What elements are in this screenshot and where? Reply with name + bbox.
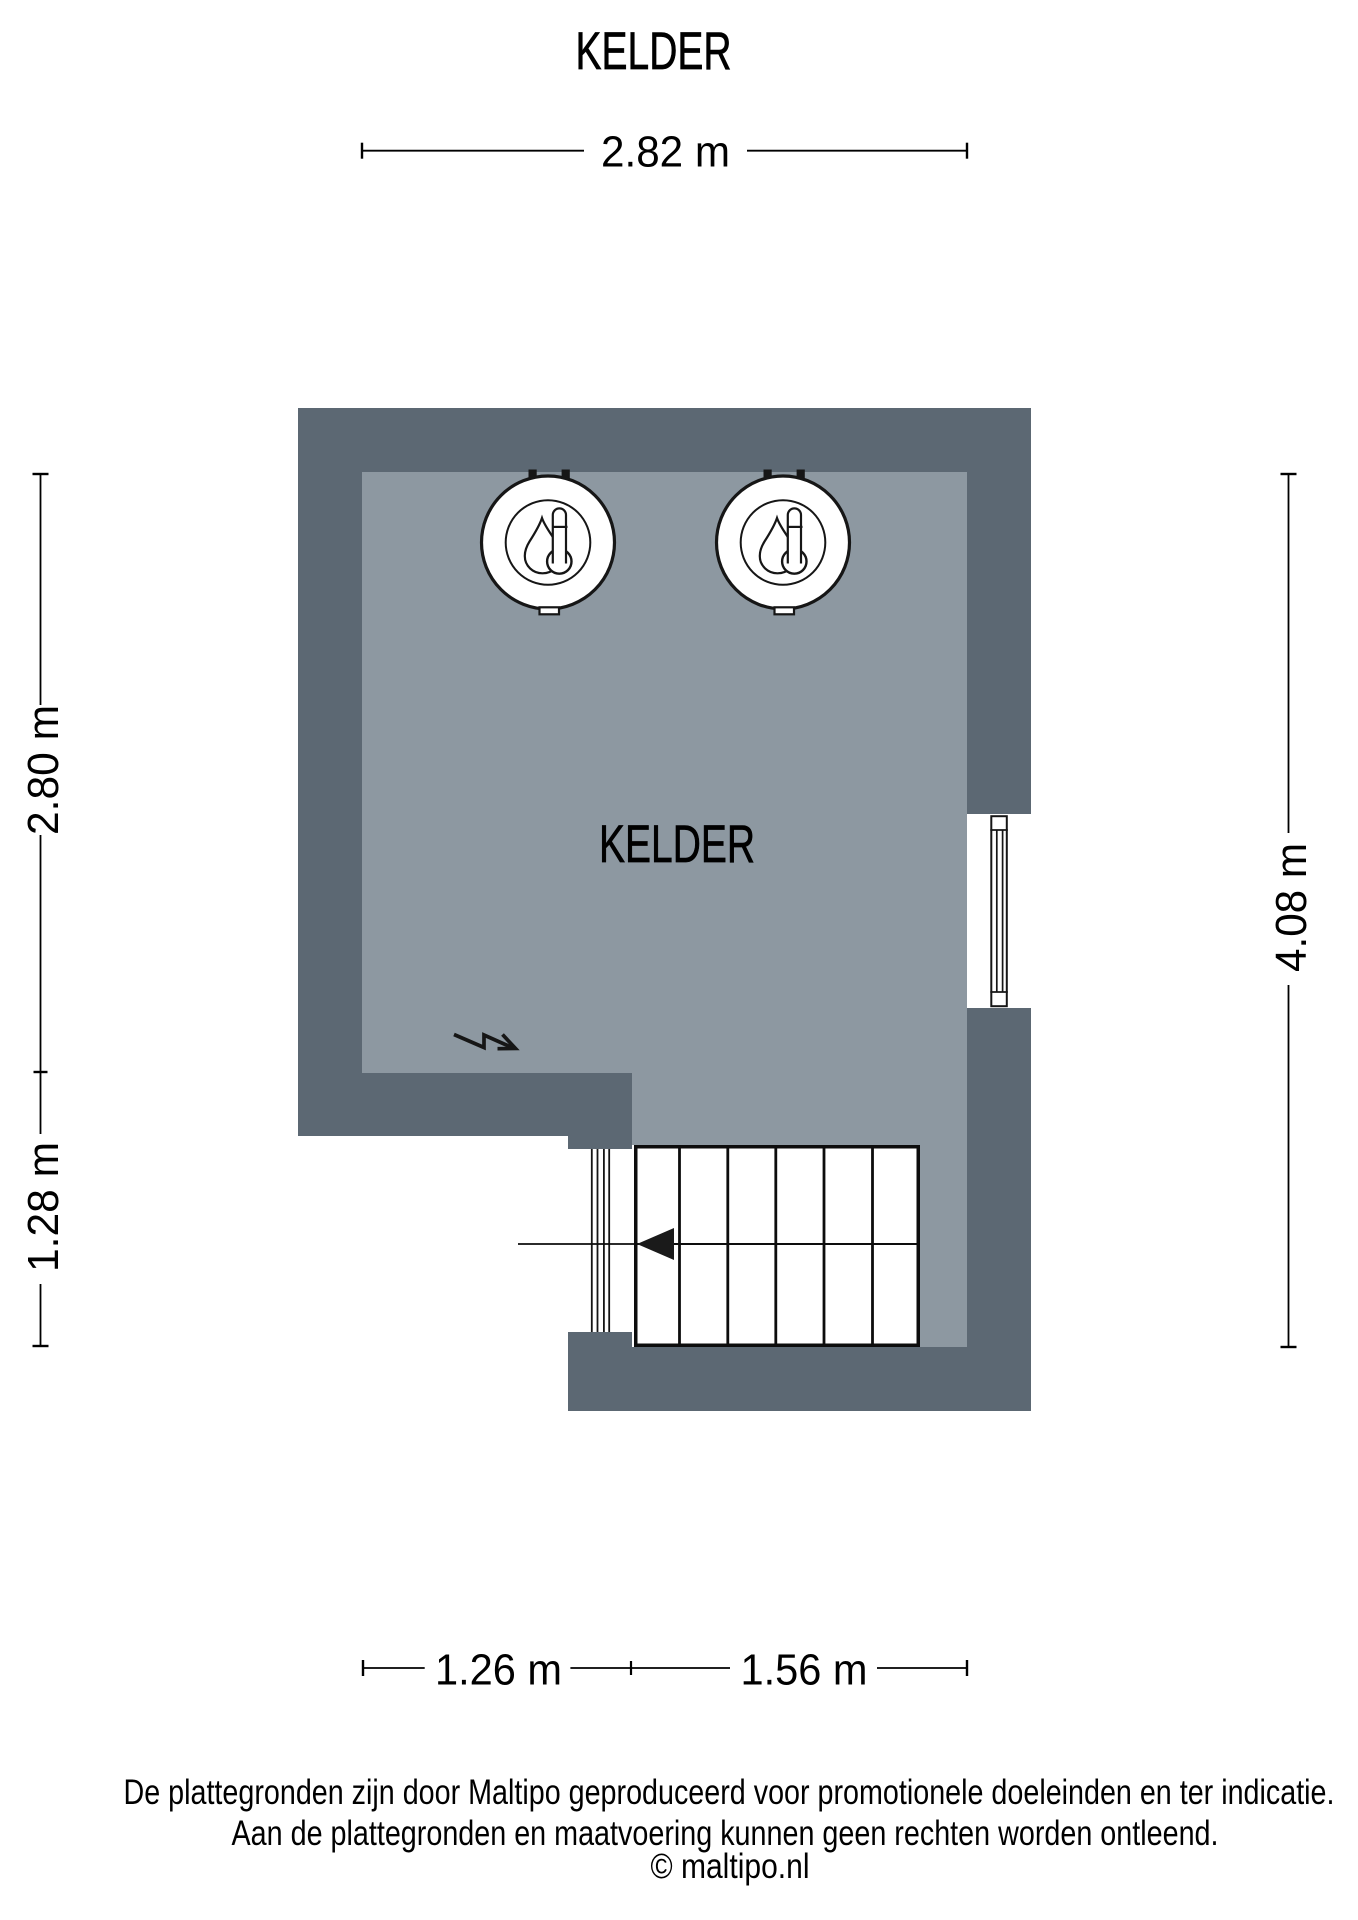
- svg-text:2.80 m: 2.80 m: [19, 705, 68, 835]
- svg-text:2.82 m: 2.82 m: [601, 128, 730, 177]
- svg-text:KELDER: KELDER: [599, 815, 755, 874]
- svg-text:1.26 m: 1.26 m: [435, 1646, 562, 1695]
- svg-text:4.08 m: 4.08 m: [1267, 843, 1316, 972]
- svg-text:1.28 m: 1.28 m: [19, 1142, 68, 1272]
- svg-text:1.56 m: 1.56 m: [741, 1646, 868, 1695]
- svg-text:© maltipo.nl: © maltipo.nl: [651, 1847, 810, 1886]
- svg-text:KELDER: KELDER: [576, 22, 732, 81]
- svg-text:De plattegronden zijn door Mal: De plattegronden zijn door Maltipo gepro…: [124, 1773, 1335, 1812]
